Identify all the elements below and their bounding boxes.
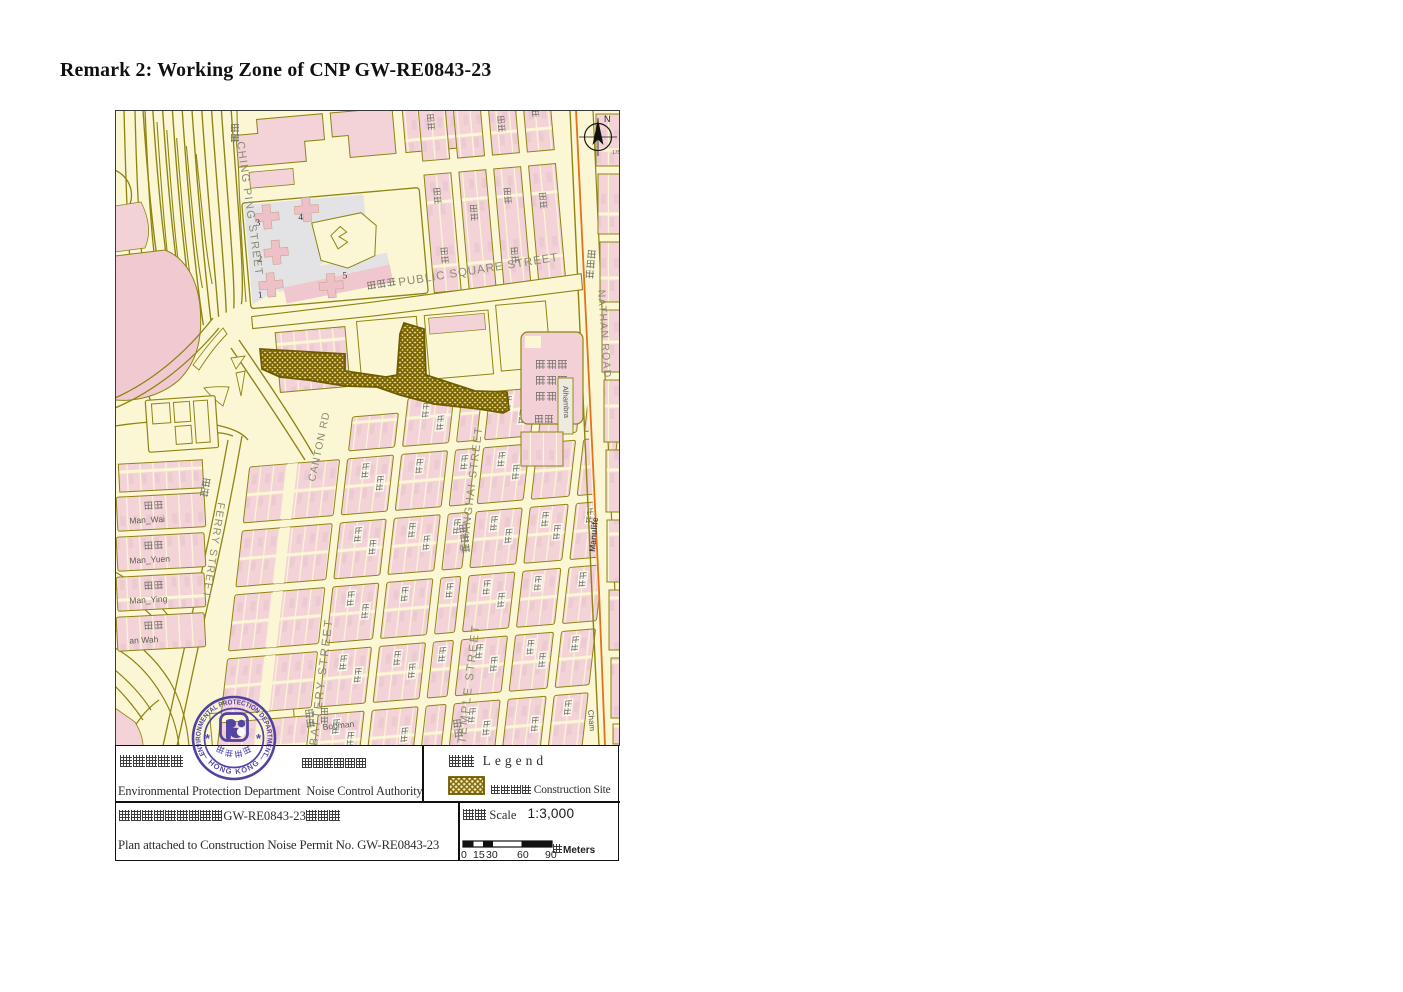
- svg-text:*: *: [256, 731, 262, 746]
- svg-text:*: *: [205, 731, 211, 746]
